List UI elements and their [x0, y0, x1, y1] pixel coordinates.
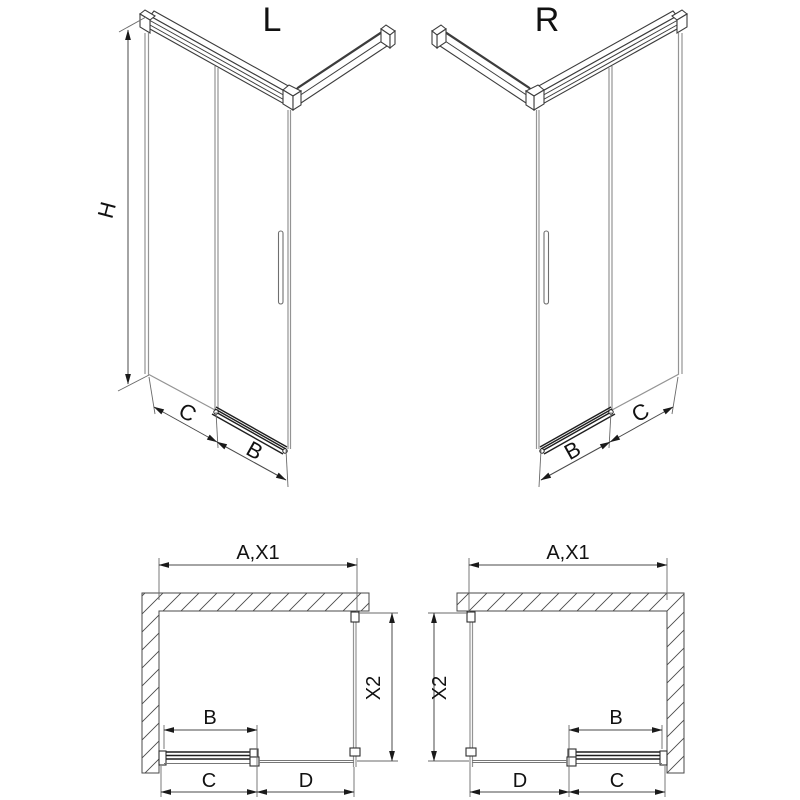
return-rail: [294, 28, 387, 105]
drawing-sheet: L: [0, 0, 800, 800]
dim-label-panel: C: [175, 398, 201, 428]
dimension-height: H: [93, 17, 149, 391]
dim-label-bottom-left: D: [513, 770, 527, 792]
return-rail: [440, 28, 533, 105]
plan-view-left: A,X1 X2 B C D: [142, 542, 398, 797]
dim-label-panel: C: [627, 398, 653, 428]
wall-hatch: [457, 593, 684, 773]
dimension-bottom: C D: [161, 766, 354, 797]
dimension-depth: X2: [428, 613, 469, 761]
sliding-door-assembly: [159, 749, 354, 766]
dimension-depth: X2: [357, 613, 398, 761]
dim-label-bottom-right: D: [299, 770, 313, 792]
dimension-panel: C: [149, 377, 218, 448]
iso-view-left: L: [93, 1, 395, 487]
technical-diagram: L: [0, 0, 800, 800]
door-handle: [279, 231, 284, 304]
wall-hatch: [142, 593, 369, 773]
dim-label-door: B: [242, 436, 267, 465]
dim-label-depth: X2: [429, 676, 451, 700]
view-label-right: R: [535, 1, 560, 39]
sliding-door-assembly: [472, 749, 667, 766]
dim-label-door: B: [203, 707, 216, 729]
door-handle: [544, 231, 549, 304]
dim-label-bottom-right: C: [610, 770, 624, 792]
side-glass-panel: [466, 612, 476, 767]
dimension-panel: C: [609, 377, 678, 448]
iso-view-right: R: [432, 1, 687, 487]
dim-label-bottom-left: C: [202, 770, 216, 792]
view-label-left: L: [263, 1, 282, 39]
dim-label-door: B: [609, 707, 622, 729]
dim-label-width: A,X1: [546, 542, 589, 564]
plan-view-right: A,X1 X2 B D C: [428, 542, 684, 797]
side-glass-panel: [350, 612, 360, 767]
dim-label-depth: X2: [363, 676, 385, 700]
dim-label-height: H: [93, 199, 121, 221]
dim-label-door: B: [560, 436, 585, 465]
dim-label-width: A,X1: [236, 542, 279, 564]
dimension-bottom: D C: [470, 766, 665, 797]
